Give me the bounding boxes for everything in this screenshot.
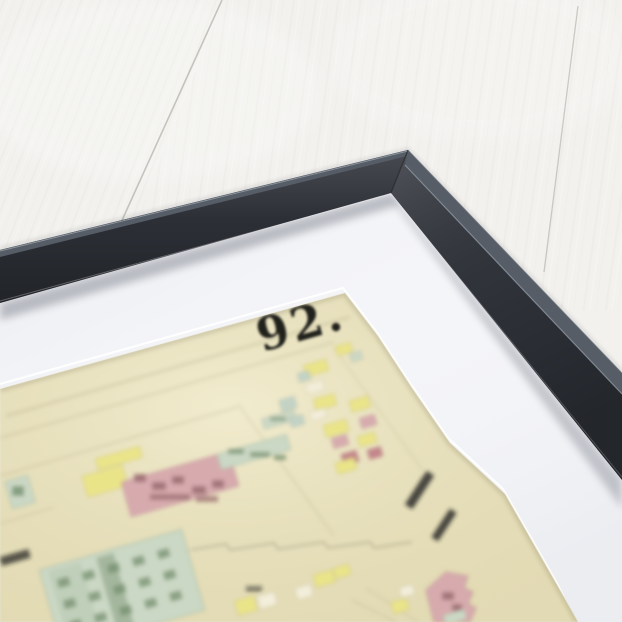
building-detail (152, 482, 166, 490)
building-detail (250, 452, 270, 457)
building-detail (274, 455, 286, 460)
building-detail (172, 476, 184, 484)
building-detail (228, 449, 244, 454)
building-detail (442, 592, 454, 600)
building-detail (246, 586, 262, 592)
framed-map-photo: 92. (0, 0, 622, 622)
building-detail (150, 494, 190, 500)
building-detail (192, 486, 206, 494)
building-detail (12, 486, 24, 496)
building-detail (270, 417, 286, 421)
building-detail (196, 496, 218, 502)
building-detail (212, 480, 224, 488)
building-detail (134, 474, 146, 482)
